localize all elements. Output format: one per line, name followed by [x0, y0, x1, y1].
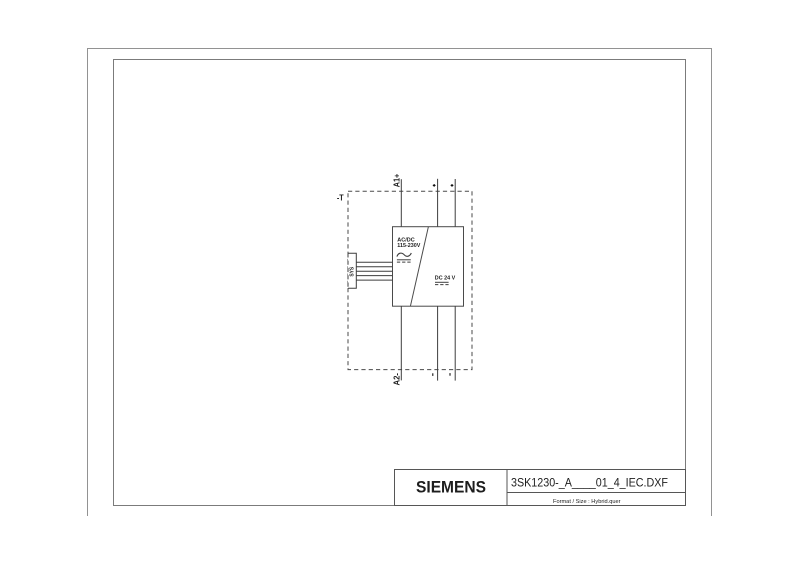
svg-text:A2-: A2-	[391, 373, 401, 386]
svg-text:SIEMENS: SIEMENS	[416, 478, 486, 496]
svg-text:3SK1230-_A____01_4_IEC.DXF: 3SK1230-_A____01_4_IEC.DXF	[511, 476, 668, 490]
svg-text:-T: -T	[337, 193, 345, 203]
svg-text:115-230V: 115-230V	[397, 243, 420, 249]
svg-text:A1+: A1+	[392, 174, 402, 188]
svg-text:DC 24 V: DC 24 V	[435, 275, 455, 281]
svg-text:Format / Size : Hybrid.quer: Format / Size : Hybrid.quer	[553, 499, 621, 505]
svg-text:SYS: SYS	[350, 266, 356, 276]
